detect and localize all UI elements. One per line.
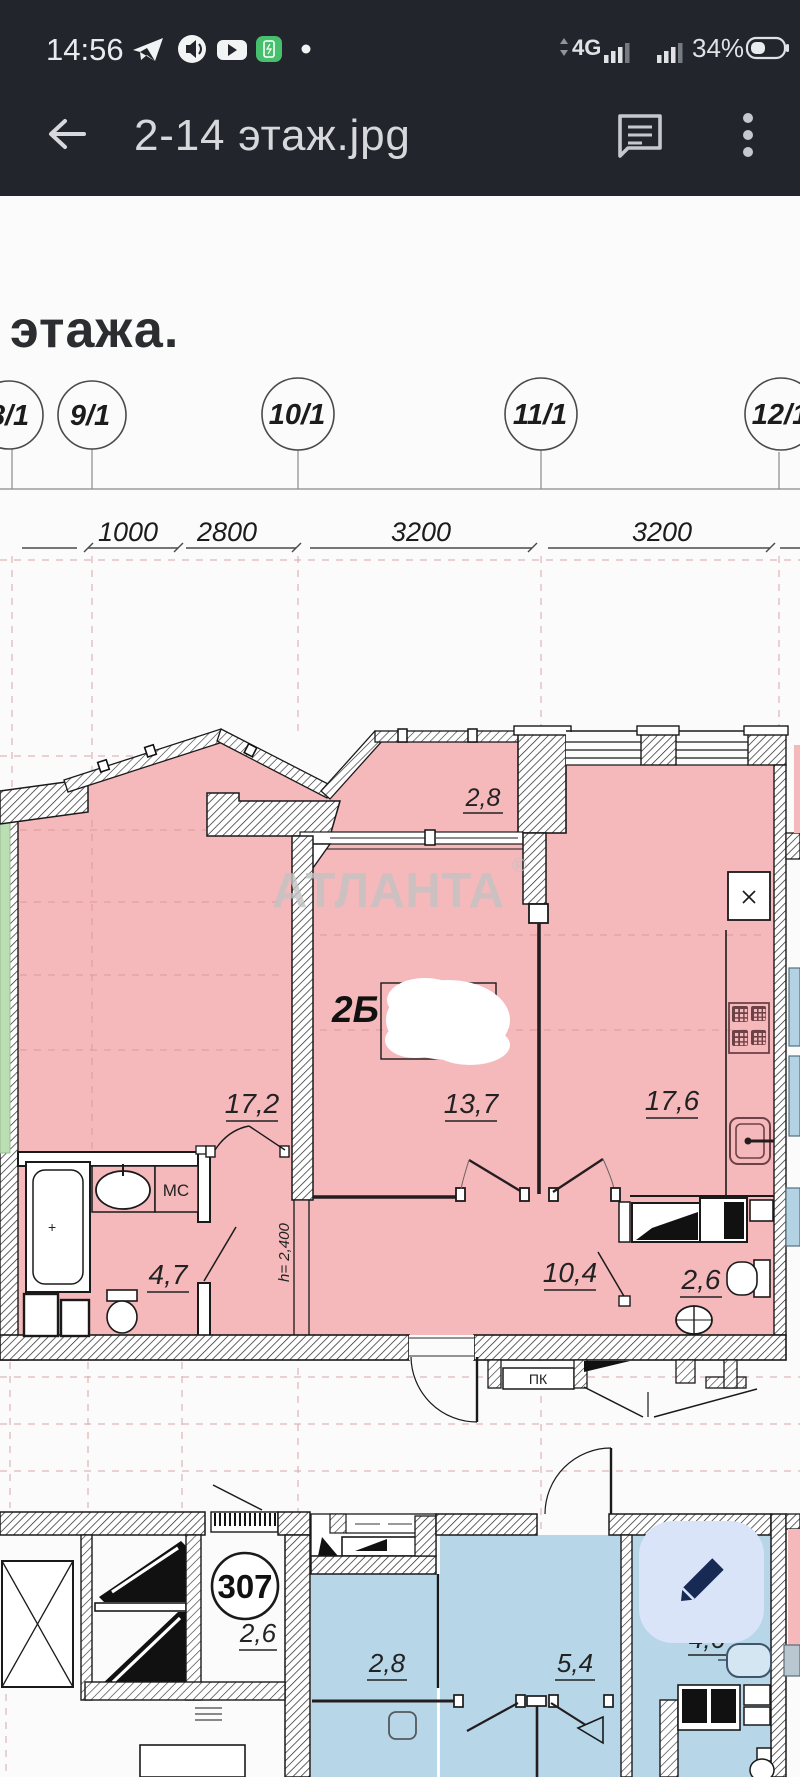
svg-text:МС: МС [163,1181,189,1200]
svg-text:+: + [48,1219,56,1235]
svg-text:2,8: 2,8 [368,1648,406,1678]
svg-text:17,2: 17,2 [225,1088,280,1119]
svg-text:3200: 3200 [391,517,451,547]
svg-text:11/1: 11/1 [513,399,567,431]
svg-text:2800: 2800 [196,517,257,547]
svg-text:1000: 1000 [98,517,158,547]
svg-text:2-14 этаж.jpg: 2-14 этаж.jpg [134,111,411,160]
svg-text:34%: 34% [692,33,744,63]
svg-text:ПК: ПК [529,1371,548,1387]
svg-text:2,6: 2,6 [239,1618,277,1648]
svg-text:10,4: 10,4 [543,1257,598,1288]
svg-text:307: 307 [217,1568,272,1605]
svg-text:2,8: 2,8 [465,784,501,812]
svg-text:2Б: 2Б [331,989,379,1030]
svg-text:2,6: 2,6 [681,1264,721,1295]
svg-text:4,7: 4,7 [149,1259,189,1290]
svg-text:14:56: 14:56 [46,32,124,67]
svg-text:®: ® [512,856,526,877]
svg-text:8/1: 8/1 [0,400,29,432]
svg-text:3200: 3200 [632,517,692,547]
svg-text:АТЛАНТА: АТЛАНТА [272,864,505,918]
svg-text:этажа.: этажа. [10,301,179,359]
svg-text:9/1: 9/1 [70,400,110,432]
svg-text:13,7: 13,7 [444,1088,500,1119]
svg-text:10/1: 10/1 [269,399,325,431]
svg-text:h= 2,400: h= 2,400 [276,1223,293,1282]
svg-text:12/1: 12/1 [752,399,800,431]
svg-text:5,4: 5,4 [557,1648,593,1678]
svg-text:4G: 4G [572,35,601,60]
svg-text:17,6: 17,6 [645,1085,700,1116]
